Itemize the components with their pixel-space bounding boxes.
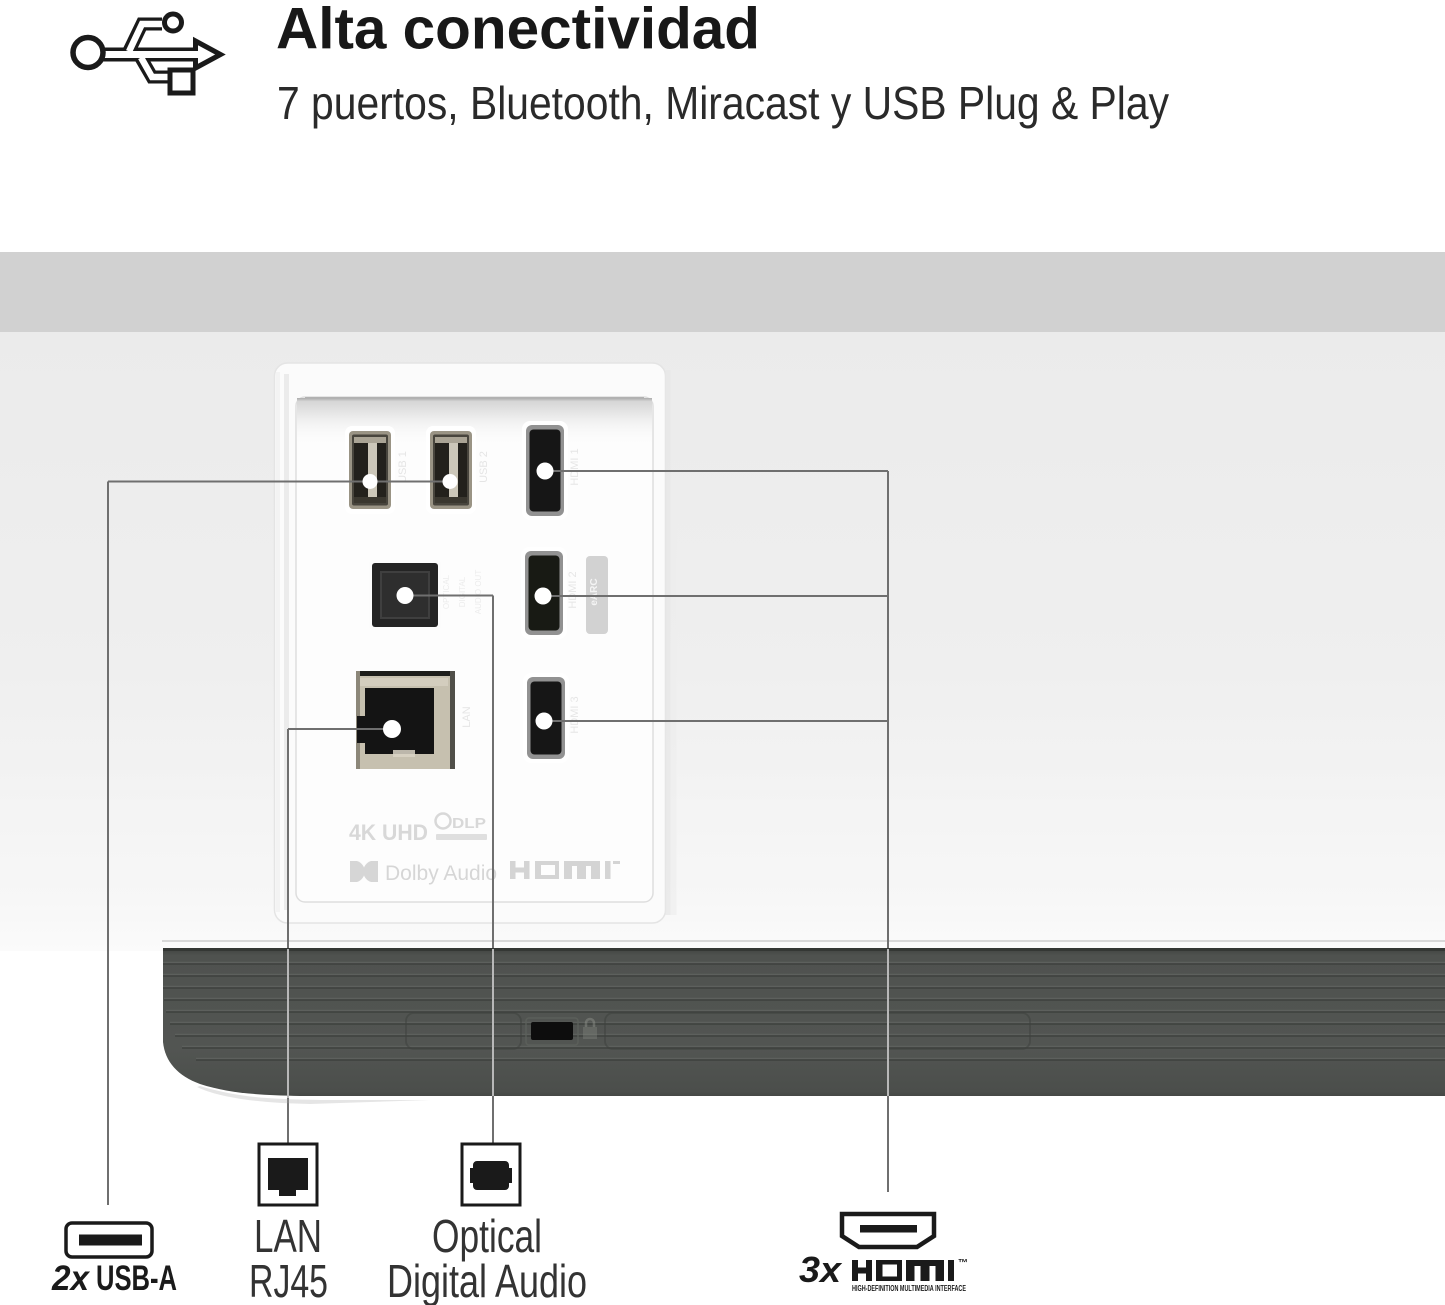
svg-text:™: ™ xyxy=(958,1258,968,1269)
svg-text:DLP: DLP xyxy=(452,815,486,832)
svg-text:USB-A: USB-A xyxy=(96,1259,177,1298)
svg-text:USB 2: USB 2 xyxy=(478,451,490,483)
svg-text:HDMI 3: HDMI 3 xyxy=(569,696,581,733)
svg-text:DIGITAL: DIGITAL xyxy=(458,576,467,607)
svg-text:7 puertos, Bluetooth, Miracast: 7 puertos, Bluetooth, Miracast y USB Plu… xyxy=(277,77,1169,129)
svg-text:Alta conectividad: Alta conectividad xyxy=(276,0,760,62)
svg-text:USB 1: USB 1 xyxy=(397,451,409,483)
svg-text:RJ45: RJ45 xyxy=(249,1255,328,1305)
svg-text:2x: 2x xyxy=(51,1259,90,1298)
svg-text:HIGH-DEFINITION MULTIMEDIA INT: HIGH-DEFINITION MULTIMEDIA INTERFACE xyxy=(852,1284,966,1293)
svg-text:eARC: eARC xyxy=(589,578,600,605)
svg-text:Dolby Audio: Dolby Audio xyxy=(385,862,497,885)
svg-text:HDMI 1: HDMI 1 xyxy=(569,448,581,485)
svg-text:OPTICAL: OPTICAL xyxy=(442,574,451,609)
svg-text:AUDIO OUT: AUDIO OUT xyxy=(474,570,483,615)
svg-text:Digital Audio: Digital Audio xyxy=(387,1255,587,1305)
svg-text:HDMI 2: HDMI 2 xyxy=(567,571,579,608)
svg-text:LAN: LAN xyxy=(461,706,473,727)
svg-text:4K UHD: 4K UHD xyxy=(349,820,428,845)
svg-text:3x: 3x xyxy=(799,1249,843,1290)
